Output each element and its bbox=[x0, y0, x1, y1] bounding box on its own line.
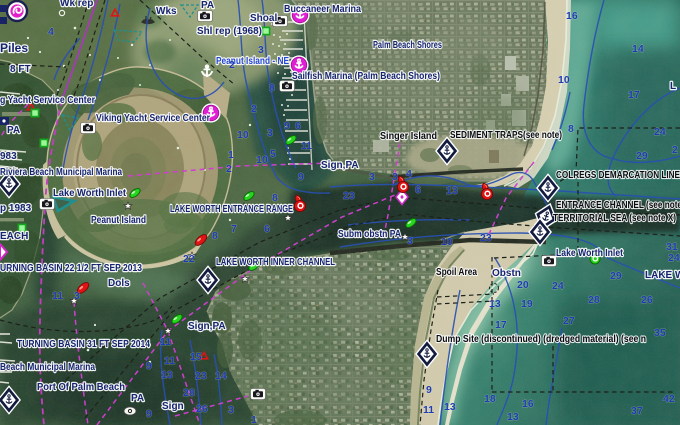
svg-text:9: 9 bbox=[146, 360, 152, 372]
svg-text:11: 11 bbox=[423, 404, 434, 416]
svg-text:L: L bbox=[670, 81, 676, 92]
svg-text:Subm obstn PA: Subm obstn PA bbox=[338, 229, 401, 240]
svg-text:8: 8 bbox=[568, 123, 574, 135]
svg-text:11: 11 bbox=[301, 140, 312, 152]
svg-text:10: 10 bbox=[237, 129, 249, 141]
svg-text:10: 10 bbox=[558, 74, 570, 86]
svg-text:SEDIMENT TRAPS(see note): SEDIMENT TRAPS(see note) bbox=[450, 130, 562, 141]
svg-text:15: 15 bbox=[190, 351, 202, 363]
svg-text:10: 10 bbox=[441, 236, 453, 248]
svg-text:Lake Worth Inlet: Lake Worth Inlet bbox=[556, 248, 624, 259]
svg-text:23: 23 bbox=[480, 232, 492, 244]
svg-text:16: 16 bbox=[566, 10, 578, 22]
svg-text:23: 23 bbox=[343, 190, 355, 202]
svg-text:13: 13 bbox=[161, 369, 173, 381]
svg-text:16: 16 bbox=[522, 398, 534, 410]
svg-text:28: 28 bbox=[183, 387, 195, 399]
svg-text:LAKE WORTH ENTRANCE RANGE: LAKE WORTH ENTRANCE RANGE bbox=[170, 204, 293, 215]
svg-text:14: 14 bbox=[632, 43, 644, 55]
svg-text:13: 13 bbox=[489, 298, 501, 310]
svg-text:Sailfish Marina (Palm Beach Sh: Sailfish Marina (Palm Beach Shores) bbox=[292, 71, 440, 82]
svg-text:18: 18 bbox=[484, 393, 496, 405]
svg-text:URNING BASIN 22 1/2 FT SEP 201: URNING BASIN 22 1/2 FT SEP 2013 bbox=[0, 263, 142, 274]
svg-text:11: 11 bbox=[164, 355, 175, 367]
svg-text:9: 9 bbox=[298, 171, 304, 183]
svg-text:8: 8 bbox=[269, 82, 275, 94]
svg-text:11: 11 bbox=[52, 290, 63, 302]
svg-text:8: 8 bbox=[272, 192, 278, 204]
svg-text:22: 22 bbox=[183, 253, 195, 265]
svg-text:Sign: Sign bbox=[162, 401, 184, 412]
svg-text:g Yacht Service Center: g Yacht Service Center bbox=[0, 95, 95, 106]
svg-text:5: 5 bbox=[270, 148, 276, 160]
svg-text:13: 13 bbox=[446, 185, 458, 197]
svg-text:Riviera Beach Municipal Marina: Riviera Beach Municipal Marina bbox=[0, 167, 122, 178]
svg-text:Piles: Piles bbox=[0, 41, 28, 55]
svg-text:42: 42 bbox=[663, 393, 675, 405]
svg-text:LAKE WO: LAKE WO bbox=[645, 270, 680, 281]
svg-text:20: 20 bbox=[517, 279, 529, 291]
svg-text:Wks: Wks bbox=[156, 6, 177, 17]
svg-text:Peanut Island - NE: Peanut Island - NE bbox=[216, 56, 289, 67]
svg-text:TERRITORIAL SEA (see note X): TERRITORIAL SEA (see note X) bbox=[553, 213, 676, 224]
svg-text:35: 35 bbox=[654, 327, 666, 339]
svg-text:1: 1 bbox=[228, 149, 234, 161]
svg-text:PA: PA bbox=[7, 125, 20, 136]
svg-text:2: 2 bbox=[229, 59, 235, 71]
svg-text:Beach Municipal Marina: Beach Municipal Marina bbox=[0, 362, 95, 373]
svg-text:13: 13 bbox=[507, 411, 519, 423]
svg-text:2: 2 bbox=[251, 103, 257, 115]
svg-text:Peanut Island: Peanut Island bbox=[91, 215, 146, 226]
svg-text:3: 3 bbox=[407, 235, 413, 247]
svg-text:8 FT: 8 FT bbox=[10, 64, 31, 75]
svg-text:LAKE WORTH INNER CHANNEL: LAKE WORTH INNER CHANNEL bbox=[216, 257, 335, 268]
svg-text:6: 6 bbox=[295, 120, 301, 132]
svg-text:COLREGS DEMARCATION LINE: COLREGS DEMARCATION LINE bbox=[556, 170, 680, 181]
svg-text:24: 24 bbox=[552, 280, 564, 292]
svg-text:3: 3 bbox=[258, 44, 264, 56]
svg-text:3: 3 bbox=[392, 171, 398, 183]
svg-text:2: 2 bbox=[226, 163, 232, 175]
svg-text:8: 8 bbox=[212, 230, 218, 242]
svg-text:TURNING BASIN 31 FT SEP 2014: TURNING BASIN 31 FT SEP 2014 bbox=[17, 339, 150, 350]
svg-text:4: 4 bbox=[48, 26, 54, 38]
svg-text:24: 24 bbox=[654, 126, 666, 138]
svg-text:17: 17 bbox=[628, 89, 640, 101]
svg-text:26: 26 bbox=[641, 294, 653, 306]
svg-text:Dump Site (discontinued) (dred: Dump Site (discontinued) (dredged materi… bbox=[436, 334, 646, 345]
svg-text:26: 26 bbox=[196, 403, 208, 415]
svg-text:1: 1 bbox=[251, 414, 257, 425]
svg-text:Buccaneer Marina: Buccaneer Marina bbox=[284, 4, 361, 15]
svg-text:6: 6 bbox=[415, 184, 421, 196]
svg-text:9: 9 bbox=[284, 120, 290, 132]
svg-text:Port Of Palm Beach: Port Of Palm Beach bbox=[37, 382, 125, 393]
svg-text:3: 3 bbox=[267, 127, 273, 139]
svg-text:Obstn: Obstn bbox=[492, 268, 521, 279]
svg-text:EACH: EACH bbox=[0, 231, 28, 242]
svg-text:27: 27 bbox=[563, 315, 575, 327]
svg-text:4: 4 bbox=[406, 168, 412, 180]
svg-text:14: 14 bbox=[215, 370, 227, 382]
svg-text:3: 3 bbox=[369, 171, 375, 183]
svg-text:Sign,PA: Sign,PA bbox=[321, 160, 359, 171]
svg-text:17: 17 bbox=[495, 319, 507, 331]
svg-text:29: 29 bbox=[610, 270, 622, 282]
svg-text:Viking Yacht Service Center: Viking Yacht Service Center bbox=[96, 113, 210, 124]
svg-text:2: 2 bbox=[672, 144, 678, 156]
svg-text:28: 28 bbox=[588, 294, 600, 306]
svg-text:Shoal: Shoal bbox=[250, 13, 277, 24]
svg-text:ENTRANCE CHANNEL (see note: ENTRANCE CHANNEL (see note bbox=[556, 200, 680, 211]
svg-text:37: 37 bbox=[631, 405, 643, 417]
svg-text:9: 9 bbox=[146, 408, 152, 420]
svg-text:13: 13 bbox=[444, 401, 456, 413]
svg-text:Wk rep: Wk rep bbox=[60, 0, 93, 9]
svg-text:3: 3 bbox=[74, 290, 80, 302]
svg-text:11: 11 bbox=[160, 336, 171, 348]
svg-text:PA: PA bbox=[201, 0, 214, 11]
svg-text:Sign,PA: Sign,PA bbox=[188, 321, 226, 332]
svg-text:9: 9 bbox=[426, 384, 432, 396]
svg-text:Spoil Area: Spoil Area bbox=[436, 267, 477, 278]
svg-text:Singer Island: Singer Island bbox=[380, 131, 437, 142]
svg-text:10: 10 bbox=[256, 154, 268, 166]
svg-text:Palm Beach Shores: Palm Beach Shores bbox=[373, 40, 442, 51]
svg-text:29: 29 bbox=[636, 150, 648, 162]
svg-text:Lake Worth Inlet: Lake Worth Inlet bbox=[53, 188, 127, 199]
svg-text:6: 6 bbox=[264, 223, 270, 235]
svg-text:23: 23 bbox=[195, 370, 207, 382]
svg-text:983: 983 bbox=[0, 151, 17, 162]
svg-text:3: 3 bbox=[228, 404, 234, 416]
svg-text:p 1983: p 1983 bbox=[0, 203, 32, 214]
svg-text:7: 7 bbox=[231, 223, 237, 235]
svg-text:19: 19 bbox=[521, 298, 533, 310]
svg-text:Dols: Dols bbox=[108, 278, 130, 289]
svg-text:24: 24 bbox=[668, 252, 680, 264]
svg-text:Shl rep (1968): Shl rep (1968) bbox=[197, 26, 262, 37]
svg-text:PA: PA bbox=[131, 393, 144, 404]
